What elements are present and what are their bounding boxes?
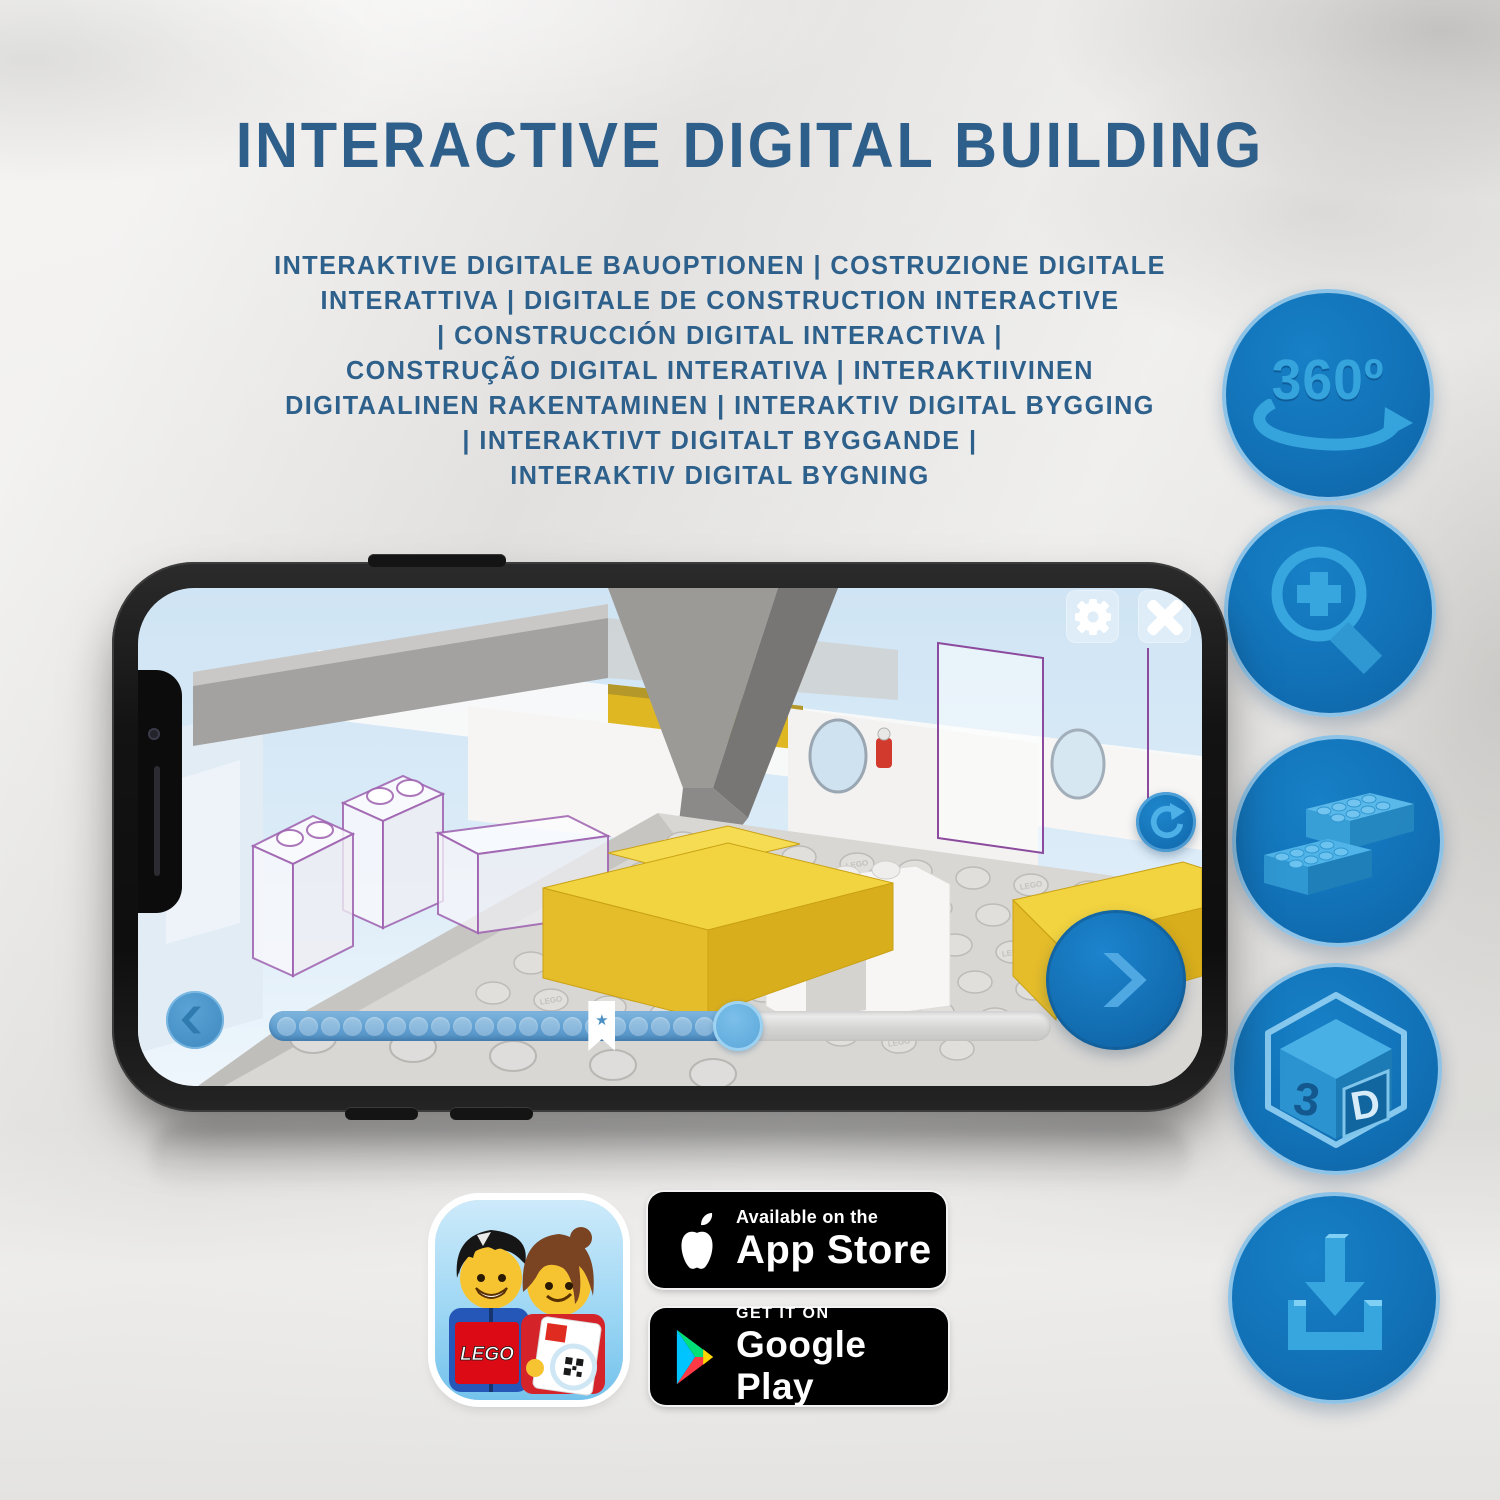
magnifier-plus-icon bbox=[1255, 536, 1405, 686]
step-dot bbox=[541, 1017, 560, 1036]
app-screen: LEGOLEGOLEGOLEGOLEGOLEGOLEGOLEGOLEGOLEGO… bbox=[138, 588, 1202, 1086]
subtitle-line: | CONSTRUCCIÓN DIGITAL INTERACTIVA | bbox=[123, 318, 1316, 353]
reset-view-button[interactable] bbox=[1136, 792, 1196, 852]
lego-bricks-icon bbox=[1254, 767, 1422, 915]
apple-icon bbox=[668, 1209, 720, 1271]
step-dot bbox=[343, 1017, 362, 1036]
lego-app-icon[interactable]: LEGO bbox=[435, 1200, 623, 1400]
bricks-icon bbox=[1232, 735, 1444, 947]
phone-shadow bbox=[150, 1122, 1190, 1192]
step-dot bbox=[695, 1017, 714, 1036]
progress-fill bbox=[269, 1011, 738, 1041]
download-icon bbox=[1228, 1192, 1440, 1404]
app-store-badge[interactable]: Available on the App Store bbox=[648, 1192, 946, 1288]
step-dot bbox=[673, 1017, 692, 1036]
star-icon: ★ bbox=[595, 1011, 608, 1029]
gear-icon bbox=[1073, 597, 1113, 637]
subtitle-line: INTERAKTIV DIGITAL BYGNING bbox=[123, 458, 1316, 493]
slider-handle[interactable] bbox=[713, 1001, 763, 1051]
step-dot bbox=[299, 1017, 318, 1036]
step-dot bbox=[387, 1017, 406, 1036]
front-camera bbox=[148, 728, 160, 740]
app-icon-art: LEGO bbox=[435, 1200, 623, 1400]
previous-step-button[interactable] bbox=[166, 991, 224, 1049]
360-rotation-icon: 360º bbox=[1222, 289, 1434, 501]
step-dot bbox=[497, 1017, 516, 1036]
360-label: 360º bbox=[1272, 347, 1385, 413]
chevron-right-icon bbox=[1083, 944, 1149, 1016]
close-button[interactable] bbox=[1138, 590, 1191, 643]
step-dot bbox=[475, 1017, 494, 1036]
subtitle-line: INTERATTIVA | DIGITALE DE CONSTRUCTION I… bbox=[123, 283, 1316, 318]
settings-button[interactable] bbox=[1066, 590, 1119, 643]
phone-notch bbox=[138, 670, 182, 913]
svg-text:LEGO: LEGO bbox=[460, 1344, 514, 1365]
step-dot bbox=[431, 1017, 450, 1036]
step-dot bbox=[629, 1017, 648, 1036]
subtitle-line: | INTERAKTIVT DIGITALT BYGGANDE | bbox=[123, 423, 1316, 458]
app-store-line2: App Store bbox=[736, 1228, 932, 1273]
subtitle-line: DIGITAALINEN RAKENTAMINEN | INTERAKTIV D… bbox=[123, 388, 1316, 423]
step-dot bbox=[519, 1017, 538, 1036]
step-dot bbox=[651, 1017, 670, 1036]
close-icon bbox=[1143, 595, 1187, 639]
smartphone: LEGOLEGOLEGOLEGOLEGOLEGOLEGOLEGOLEGOLEGO… bbox=[112, 562, 1228, 1112]
google-play-line1: GET IT ON bbox=[736, 1305, 948, 1323]
google-play-line2: Google Play bbox=[736, 1324, 948, 1408]
step-dot bbox=[563, 1017, 582, 1036]
3d-hexagon-icon: 3 D bbox=[1254, 987, 1418, 1151]
step-dot bbox=[409, 1017, 428, 1036]
earpiece-speaker bbox=[154, 766, 160, 876]
volume-button bbox=[450, 1107, 533, 1120]
volume-button bbox=[345, 1107, 418, 1120]
refresh-icon bbox=[1145, 801, 1187, 843]
step-dot bbox=[453, 1017, 472, 1036]
download-arrow-icon bbox=[1258, 1222, 1410, 1374]
subtitle-line: INTERAKTIVE DIGITALE BAUOPTIONEN | COSTR… bbox=[123, 248, 1316, 283]
subtitle-line: CONSTRUÇÃO DIGITAL INTERATIVA | INTERAKT… bbox=[123, 353, 1316, 388]
3d-cube-icon: 3 D bbox=[1230, 963, 1442, 1175]
step-dot bbox=[321, 1017, 340, 1036]
step-dot bbox=[365, 1017, 384, 1036]
next-step-button[interactable] bbox=[1046, 910, 1186, 1050]
app-store-line1: Available on the bbox=[736, 1207, 932, 1228]
page-title: INTERACTIVE DIGITAL BUILDING bbox=[0, 108, 1500, 182]
zoom-in-icon bbox=[1224, 505, 1436, 717]
power-button bbox=[368, 554, 506, 567]
chevron-left-icon bbox=[180, 1003, 210, 1037]
google-play-badge[interactable]: GET IT ON Google Play bbox=[650, 1308, 948, 1405]
play-triangle-icon bbox=[670, 1328, 720, 1386]
multilingual-subtitle: INTERAKTIVE DIGITALE BAUOPTIONEN | COSTR… bbox=[105, 248, 1335, 493]
marketing-image: INTERACTIVE DIGITAL BUILDING INTERAKTIVE… bbox=[0, 0, 1500, 1500]
build-progress-slider[interactable]: ★ bbox=[269, 1011, 1051, 1041]
step-dot bbox=[277, 1017, 296, 1036]
